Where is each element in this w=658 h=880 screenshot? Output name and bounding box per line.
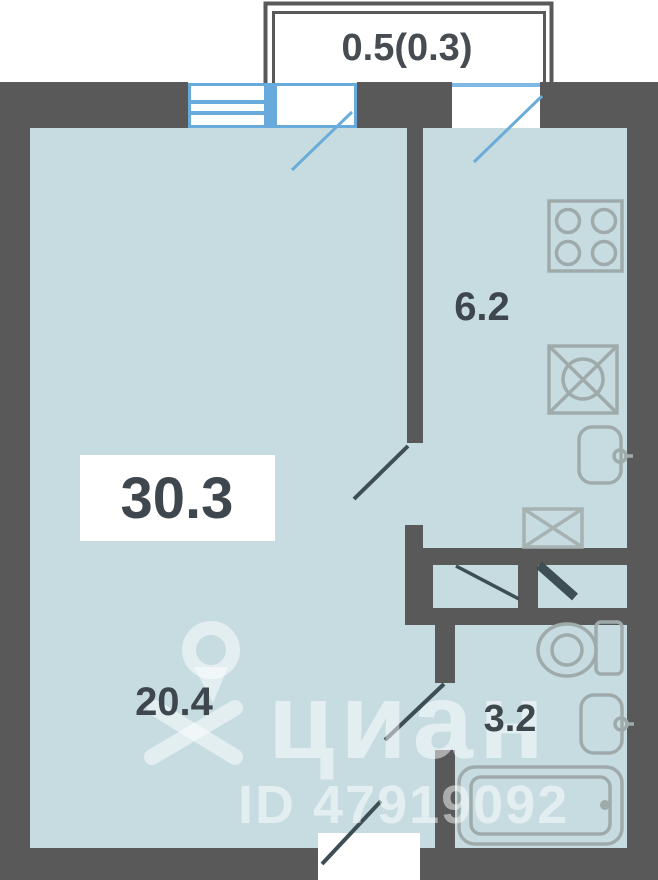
watermark-listing-id: ID 47919092 [238,775,569,835]
wall-right [627,82,658,880]
balcony-area-label: 0.5(0.3) [342,27,473,69]
entrance-opening [318,833,420,880]
wall-left [0,82,30,880]
kitchen-label: 6.2 [454,285,510,329]
wall-hall-pier [518,565,538,608]
bathroom-label: 3.2 [484,698,537,740]
balcony: 0.5(0.3) [263,0,555,83]
window-divider [266,83,274,128]
wall-divider-stub [405,525,423,548]
floor-plan-canvas: 0.5(0.3) [0,0,658,880]
balcony-door-sill [452,83,540,87]
wall-top-middle [357,82,452,128]
wall-hall-top [405,548,627,565]
wall-top-left [0,82,188,128]
wall-hall-bottom [405,608,627,625]
floor-plan: 0.5(0.3) [0,0,658,880]
wall-kitchen-divider [407,128,423,443]
balcony-door-opening [452,83,540,128]
total-area-label: 30.3 [121,466,234,531]
living-room-label: 20.4 [135,680,214,724]
window-left-glass [188,83,267,128]
